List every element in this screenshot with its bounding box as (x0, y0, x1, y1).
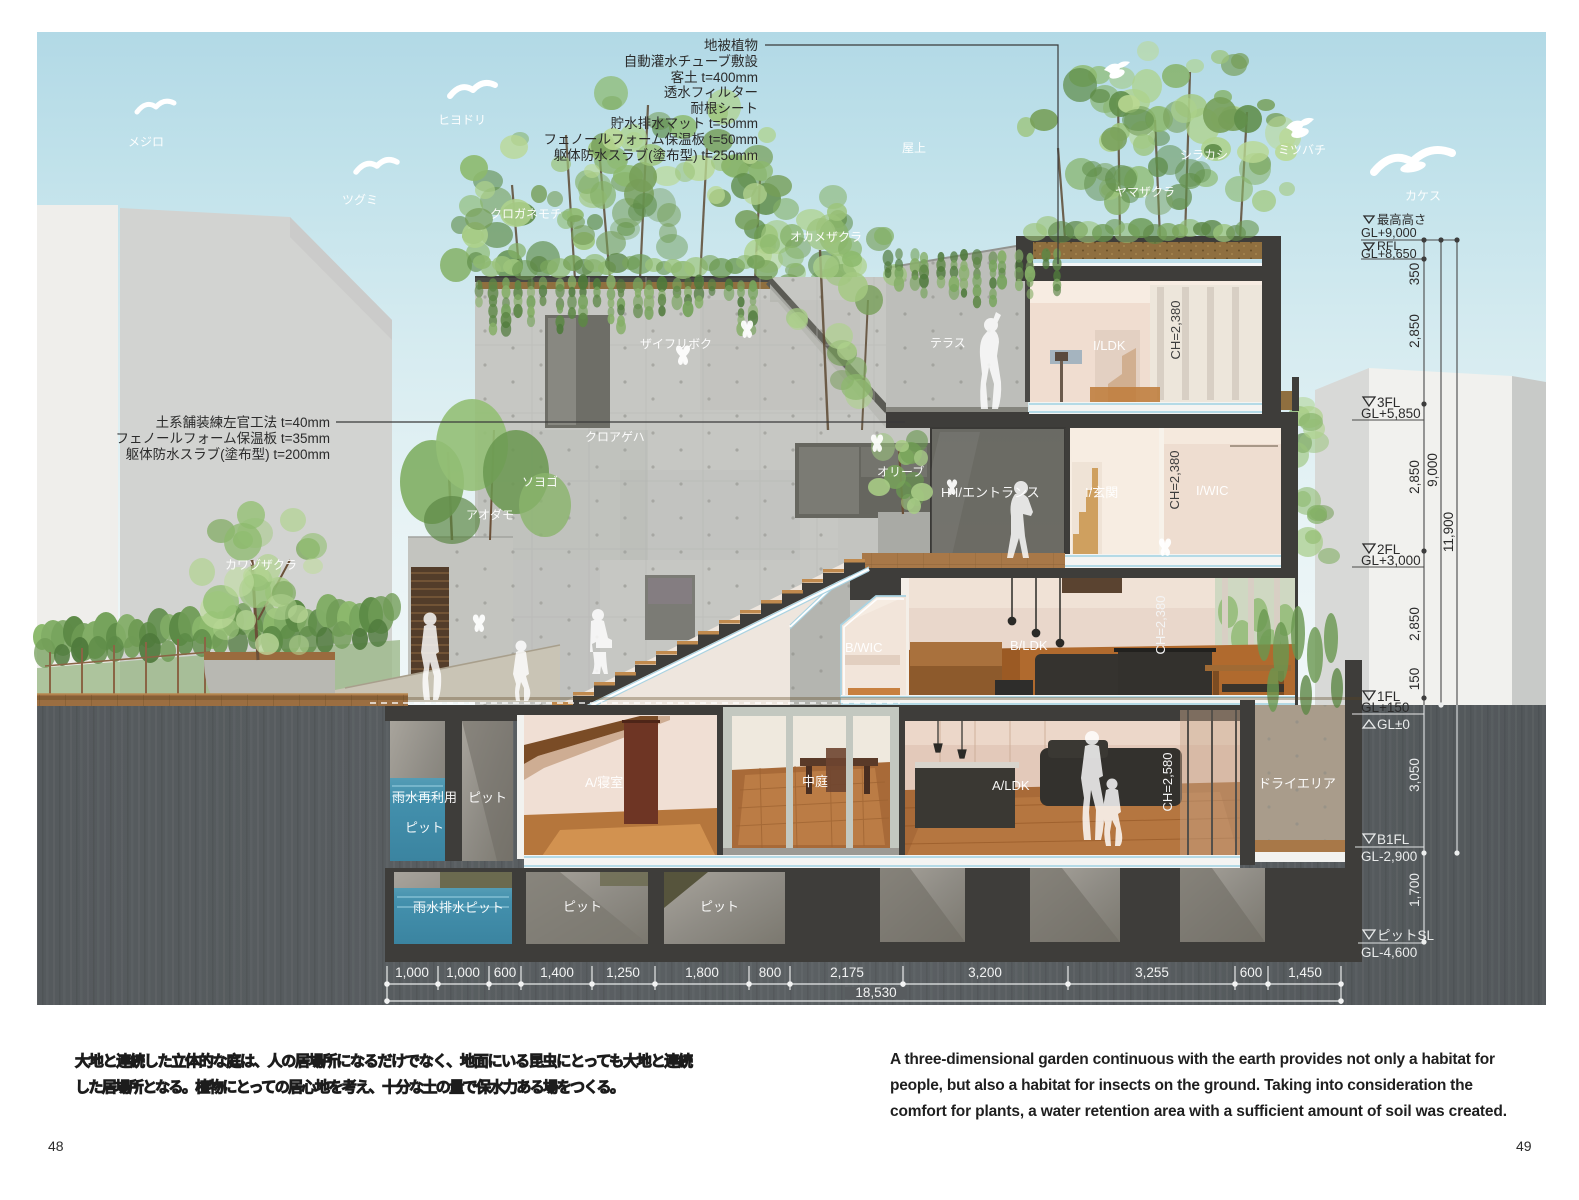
svg-text:1,250: 1,250 (606, 965, 640, 980)
svg-text:シラカシ: シラカシ (1180, 148, 1228, 162)
svg-text:GL-4,600: GL-4,600 (1361, 945, 1417, 960)
svg-text:ザイフリボク: ザイフリボク (640, 337, 712, 351)
svg-text:48: 48 (48, 1138, 64, 1154)
svg-text:CH=2,380: CH=2,380 (1153, 596, 1168, 655)
svg-text:ピット: ピット (468, 790, 507, 805)
svg-text:800: 800 (759, 965, 782, 980)
svg-text:ヒヨドリ: ヒヨドリ (438, 113, 486, 127)
svg-text:ピット: ピット (563, 899, 602, 914)
svg-text:カワヅザクラ: カワヅザクラ (225, 558, 297, 572)
svg-text:大地と連続した立体的な庭は、人の居場所になるだけでなく、地面: 大地と連続した立体的な庭は、人の居場所になるだけでなく、地面にいる昆虫にとっても… (75, 1052, 693, 1070)
svg-text:貯水排水マット t=50mm: 貯水排水マット t=50mm (611, 116, 758, 131)
svg-text:people, but also a habitat for: people, but also a habitat for insects o… (890, 1077, 1473, 1094)
svg-text:地被植物: 地被植物 (704, 38, 758, 53)
svg-text:土系舗装練左官工法 t=40mm: 土系舗装練左官工法 t=40mm (156, 415, 330, 430)
svg-text:I/玄関: I/玄関 (1085, 485, 1118, 500)
svg-text:ヤマザクラ: ヤマザクラ (1115, 185, 1175, 199)
svg-text:1,450: 1,450 (1288, 965, 1322, 980)
svg-text:ピット: ピット (700, 899, 739, 914)
svg-text:アオダモ: アオダモ (466, 507, 514, 522)
svg-text:B1FL: B1FL (1377, 832, 1410, 847)
svg-text:中庭: 中庭 (802, 774, 828, 789)
svg-text:I/LDK: I/LDK (1093, 338, 1126, 353)
svg-text:オカメザクラ: オカメザクラ (790, 230, 862, 244)
svg-text:11,900: 11,900 (1441, 512, 1456, 552)
svg-text:600: 600 (494, 965, 517, 980)
svg-text:フェノールフォーム保温板 t=50mm: フェノールフォーム保温板 t=50mm (544, 132, 759, 147)
svg-text:I/WIC: I/WIC (1196, 483, 1229, 498)
svg-text:ツグミ: ツグミ (342, 193, 378, 207)
svg-text:comfort for plants, a water re: comfort for plants, a water retention ar… (890, 1103, 1507, 1120)
svg-text:GL+3,000: GL+3,000 (1361, 553, 1421, 568)
svg-text:耐根シート: 耐根シート (691, 101, 759, 116)
svg-text:B/LDK: B/LDK (1010, 638, 1048, 653)
svg-text:B/WIC: B/WIC (845, 640, 883, 655)
svg-text:雨水再利用: 雨水再利用 (392, 790, 457, 805)
svg-text:GL+9,000: GL+9,000 (1361, 226, 1417, 240)
svg-text:ミツバチ: ミツバチ (1278, 143, 1326, 157)
svg-text:H·I/エントランス: H·I/エントランス (941, 485, 1040, 500)
svg-text:テラス: テラス (930, 336, 966, 350)
svg-text:2,175: 2,175 (830, 965, 864, 980)
svg-text:2,850: 2,850 (1407, 607, 1422, 641)
svg-text:A three-dimensional garden con: A three-dimensional garden continuous wi… (890, 1051, 1495, 1068)
svg-text:CH=2,580: CH=2,580 (1160, 753, 1175, 812)
svg-text:2,850: 2,850 (1407, 460, 1422, 494)
svg-text:150: 150 (1407, 668, 1422, 691)
svg-text:GL+5,850: GL+5,850 (1361, 406, 1421, 421)
svg-text:ドライエリア: ドライエリア (1258, 776, 1336, 791)
svg-text:1,800: 1,800 (685, 965, 719, 980)
svg-text:18,530: 18,530 (855, 985, 896, 1000)
svg-text:2,850: 2,850 (1407, 314, 1422, 348)
svg-text:1,000: 1,000 (395, 965, 429, 980)
svg-text:CH=2,380: CH=2,380 (1167, 451, 1182, 510)
svg-text:CH=2,380: CH=2,380 (1168, 301, 1183, 360)
svg-text:600: 600 (1240, 965, 1263, 980)
svg-text:ピットSL: ピットSL (1377, 928, 1435, 943)
svg-text:1,700: 1,700 (1407, 873, 1422, 907)
svg-text:GL±0: GL±0 (1377, 717, 1410, 732)
svg-text:350: 350 (1407, 263, 1422, 286)
svg-text:した居場所となる。植物にとっての居心地を考え、十分な土の量で: した居場所となる。植物にとっての居心地を考え、十分な土の量で保水力ある場をつくる… (75, 1078, 625, 1096)
svg-text:オリーブ: オリーブ (877, 464, 924, 479)
svg-text:フェノールフォーム保温板 t=35mm: フェノールフォーム保温板 t=35mm (116, 431, 331, 446)
svg-text:A/LDK: A/LDK (992, 778, 1030, 793)
svg-text:屋上: 屋上 (902, 141, 926, 155)
svg-text:最高高さ: 最高高さ (1377, 212, 1426, 227)
svg-text:躯体防水スラブ(塗布型) t=250mm: 躯体防水スラブ(塗布型) t=250mm (554, 147, 758, 163)
svg-text:透水フィルター: 透水フィルター (664, 85, 758, 100)
svg-text:1,400: 1,400 (540, 965, 574, 980)
svg-text:1,000: 1,000 (446, 965, 480, 980)
svg-text:3,200: 3,200 (968, 965, 1002, 980)
svg-text:9,000: 9,000 (1425, 453, 1440, 487)
svg-text:客土 t=400mm: 客土 t=400mm (671, 69, 758, 85)
svg-text:3,255: 3,255 (1135, 965, 1169, 980)
svg-text:A/寝室: A/寝室 (585, 775, 623, 790)
svg-text:クロアゲハ: クロアゲハ (585, 430, 645, 444)
svg-text:49: 49 (1516, 1138, 1532, 1154)
svg-text:クロガネモチ: クロガネモチ (490, 207, 562, 221)
svg-text:GL-2,900: GL-2,900 (1361, 849, 1417, 864)
svg-text:メジロ: メジロ (128, 135, 164, 149)
svg-text:躯体防水スラブ(塗布型) t=200mm: 躯体防水スラブ(塗布型) t=200mm (126, 446, 330, 462)
svg-text:3,050: 3,050 (1407, 758, 1422, 792)
svg-text:GL+150: GL+150 (1361, 700, 1409, 715)
svg-text:ピット: ピット (405, 820, 444, 835)
svg-text:雨水排水ピット: 雨水排水ピット (413, 900, 504, 915)
svg-text:自動灌水チューブ敷設: 自動灌水チューブ敷設 (624, 53, 759, 69)
svg-text:ソヨゴ: ソヨゴ (522, 474, 558, 489)
svg-text:カケス: カケス (1405, 189, 1441, 203)
